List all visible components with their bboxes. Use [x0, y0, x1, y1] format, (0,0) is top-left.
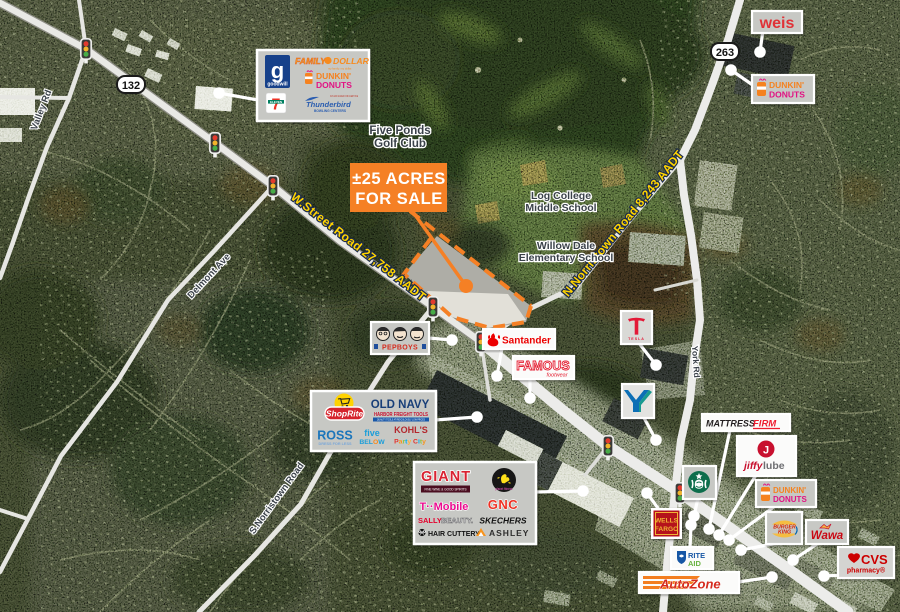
svg-text:KING: KING — [778, 530, 791, 536]
svg-text:planet fitness: planet fitness — [496, 487, 513, 491]
svg-text:GNC: GNC — [488, 497, 519, 512]
svg-text:Thunderbird: Thunderbird — [306, 100, 351, 109]
svg-text:footwear: footwear — [546, 373, 568, 379]
svg-text:FIRM: FIRM — [753, 419, 777, 430]
svg-text:SALLY: SALLY — [418, 516, 442, 525]
svg-text:Elementary School: Elementary School — [519, 252, 614, 264]
svg-text:pharmacy®: pharmacy® — [847, 567, 886, 575]
svg-text:KOHL'S: KOHL'S — [394, 425, 428, 435]
svg-text:HAIR CUTTERY: HAIR CUTTERY — [428, 531, 480, 538]
svg-text:Middle School: Middle School — [525, 202, 596, 214]
svg-text:goodwill: goodwill — [267, 82, 288, 88]
svg-text:ASHLEY: ASHLEY — [489, 528, 529, 538]
svg-text:DUNKIN': DUNKIN' — [773, 486, 806, 495]
svg-text:CVS: CVS — [861, 552, 888, 567]
svg-text:QUALITY TOOLS AT RIDICULOUSLY: QUALITY TOOLS AT RIDICULOUSLY LOW PRICES — [377, 418, 425, 422]
svg-text:Five Ponds: Five Ponds — [369, 125, 430, 137]
svg-text:T··Mobile: T··Mobile — [420, 501, 469, 513]
svg-text:DONUTS: DONUTS — [769, 90, 805, 100]
svg-text:FAMOUS: FAMOUS — [516, 359, 569, 373]
svg-text:weis: weis — [759, 15, 795, 32]
svg-text:263: 263 — [716, 47, 734, 59]
svg-text:FOR SALE: FOR SALE — [355, 190, 442, 208]
svg-text:AID: AID — [688, 559, 702, 568]
svg-text:DONUTS: DONUTS — [773, 495, 807, 504]
svg-text:TESLA: TESLA — [628, 337, 645, 341]
svg-text:my family. my dollar.: my family. my dollar. — [328, 67, 352, 71]
svg-text:DONUTS: DONUTS — [316, 80, 352, 90]
svg-text:WELLS: WELLS — [655, 518, 679, 525]
svg-text:Wawa: Wawa — [811, 530, 844, 542]
svg-text:Willow Dale: Willow Dale — [537, 240, 595, 252]
svg-text:ShopRite: ShopRite — [326, 409, 364, 419]
svg-text:lube: lube — [763, 460, 785, 472]
svg-text:ROSS: ROSS — [317, 429, 352, 443]
svg-text:AutoZone: AutoZone — [659, 577, 721, 592]
svg-text:jiffy: jiffy — [742, 460, 764, 472]
svg-text:ELEVEN: ELEVEN — [270, 100, 282, 104]
svg-text:J: J — [763, 445, 769, 457]
svg-text:FARGO: FARGO — [655, 526, 678, 533]
svg-text:SKECHERS: SKECHERS — [479, 516, 527, 526]
svg-text:DRESS FOR LESS: DRESS FOR LESS — [319, 442, 353, 446]
svg-text:Golf Club: Golf Club — [374, 138, 426, 150]
svg-text:BELOW: BELOW — [359, 439, 385, 446]
svg-text:g: g — [271, 58, 284, 83]
svg-text:FAMILY: FAMILY — [295, 56, 327, 66]
svg-text:FINE WINE & GOOD SPIRITS: FINE WINE & GOOD SPIRITS — [425, 488, 467, 492]
svg-text:±25 ACRES: ±25 ACRES — [352, 170, 446, 188]
svg-text:DOLLAR: DOLLAR — [333, 56, 370, 66]
svg-text:PEPBOYS: PEPBOYS — [382, 345, 418, 352]
svg-text:FUN AND GAMES FOR EVERYONE: FUN AND GAMES FOR EVERYONE — [330, 94, 358, 98]
svg-text:Log College: Log College — [531, 190, 591, 202]
svg-text:MATTRESS: MATTRESS — [706, 419, 755, 429]
svg-text:132: 132 — [122, 80, 140, 92]
svg-text:Party City: Party City — [394, 439, 426, 446]
svg-text:five: five — [364, 428, 380, 438]
svg-text:OLD NAVY: OLD NAVY — [371, 399, 430, 411]
svg-text:DUNKIN': DUNKIN' — [769, 80, 804, 90]
svg-text:BEAUTY.: BEAUTY. — [441, 516, 473, 525]
svg-text:Santander: Santander — [502, 336, 551, 347]
svg-text:BOWLING CENTERS: BOWLING CENTERS — [314, 109, 346, 113]
svg-text:HARBOR FREIGHT TOOLS: HARBOR FREIGHT TOOLS — [374, 412, 429, 418]
svg-text:GIANT: GIANT — [421, 469, 471, 485]
